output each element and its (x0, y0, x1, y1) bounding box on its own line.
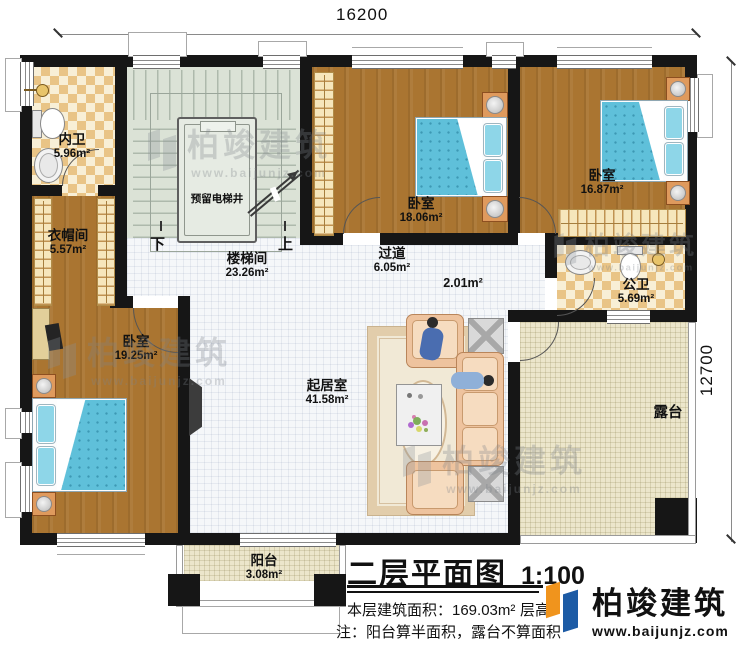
pillow (37, 447, 55, 485)
room-label-living: 起居室 41.58m² (294, 378, 360, 408)
room-label-terrace: 露台 (640, 405, 696, 422)
shower-arm (657, 245, 659, 254)
room-label-public-bath: 公卫 5.69m² (605, 277, 667, 307)
window-sill (57, 546, 145, 555)
elevator-label: 预留电梯井 (179, 191, 255, 206)
brand-name: 柏竣建筑 (592, 578, 729, 623)
brand-building-icon (542, 578, 584, 640)
dimension-tick (53, 28, 63, 38)
room-label-stair-hall: 楼梯间 23.26m² (204, 251, 290, 281)
room-label-bedroom-mid: 卧室 18.06m² (390, 196, 452, 226)
wall (178, 308, 190, 533)
stair-direction-tick (284, 221, 286, 231)
terrace-railing (520, 535, 696, 544)
sink (565, 250, 596, 275)
bed (32, 398, 127, 492)
stair-direction-tick (160, 221, 162, 231)
person-figure (419, 316, 445, 362)
shower-head (36, 84, 49, 97)
wall (178, 296, 190, 308)
wall (115, 67, 127, 308)
window (133, 55, 180, 69)
nightstand (482, 196, 508, 222)
pillow (37, 405, 55, 443)
bed-fold (57, 400, 95, 490)
floor-plan-canvas: 16200 12700 预留电梯井 下 上 (0, 0, 750, 653)
dimension-tick (691, 28, 701, 38)
tv (189, 378, 202, 436)
window (57, 533, 145, 547)
pillow (665, 107, 683, 139)
room-label-balcony: 阳台 3.08m² (234, 553, 294, 583)
window (557, 55, 652, 69)
nightstand (32, 492, 56, 516)
sliding-door (240, 533, 336, 547)
coffee-table (396, 384, 442, 446)
window (263, 55, 300, 69)
title-rule (347, 591, 539, 593)
shower-arm (24, 89, 37, 91)
shower-head (652, 253, 665, 266)
sofa-cushion (462, 392, 498, 426)
room-label-bedroom-right: 卧室 16.87m² (556, 168, 648, 198)
nightstand (666, 77, 690, 101)
side-table (468, 466, 504, 502)
window (607, 310, 650, 324)
room-label-corridor: 过道 6.05m² (362, 246, 422, 276)
wall (300, 67, 312, 245)
window (20, 62, 34, 106)
room-label-inner-bath: 内卫 5.96m² (40, 132, 104, 162)
dimension-height: 12700 (697, 325, 717, 415)
dimension-line-right (731, 62, 732, 542)
bed-fold (448, 119, 482, 195)
wall (98, 185, 115, 196)
elevator-shaft: 预留电梯井 (177, 117, 257, 243)
wardrobe (558, 209, 686, 237)
pillow (665, 143, 683, 175)
room-label-lobby: 2.01m² (435, 276, 491, 291)
elevator-door (200, 121, 236, 132)
balcony-eave-outline (182, 606, 340, 634)
wall (32, 185, 62, 196)
armchair (406, 461, 464, 515)
wardrobe (314, 72, 334, 236)
nightstand (32, 374, 56, 398)
nightstand (666, 181, 690, 205)
wall (508, 362, 520, 533)
side-table (468, 318, 504, 354)
wall (380, 233, 518, 245)
toilet (620, 253, 641, 280)
window (492, 55, 516, 69)
room-label-cloakroom: 衣帽间 5.57m² (34, 228, 102, 258)
bed (415, 117, 507, 197)
title-rule (347, 585, 543, 588)
wall (650, 310, 697, 322)
elevator-shaft-inner (184, 124, 250, 236)
pillow (484, 160, 502, 192)
sofa-cushion (462, 427, 498, 461)
flower-decoration (413, 417, 421, 425)
person-figure (447, 366, 489, 394)
nightstand (482, 92, 508, 118)
brand-logo: 柏竣建筑 www.baijunjz.com (542, 578, 729, 640)
bay-window-outline (697, 74, 713, 138)
stair-down-label: 下 (150, 233, 165, 254)
brand-url: www.baijunjz.com (592, 623, 729, 639)
tea-set (407, 393, 412, 398)
balcony-column (314, 574, 346, 606)
floor-area-text: 本层建筑面积：169.03m² (347, 599, 515, 620)
wall (545, 233, 557, 278)
window (352, 55, 463, 69)
room-label-bedroom-left: 卧室 19.25m² (103, 334, 169, 364)
pillow (484, 124, 502, 156)
bay-window-outline (128, 32, 187, 57)
dimension-width: 16200 (336, 5, 388, 25)
terrace-railing (688, 322, 696, 538)
note-text: 注：阳台算半面积，露台不算面积 (336, 621, 561, 642)
armchair-cushion (412, 470, 458, 509)
balcony-column (168, 574, 200, 606)
